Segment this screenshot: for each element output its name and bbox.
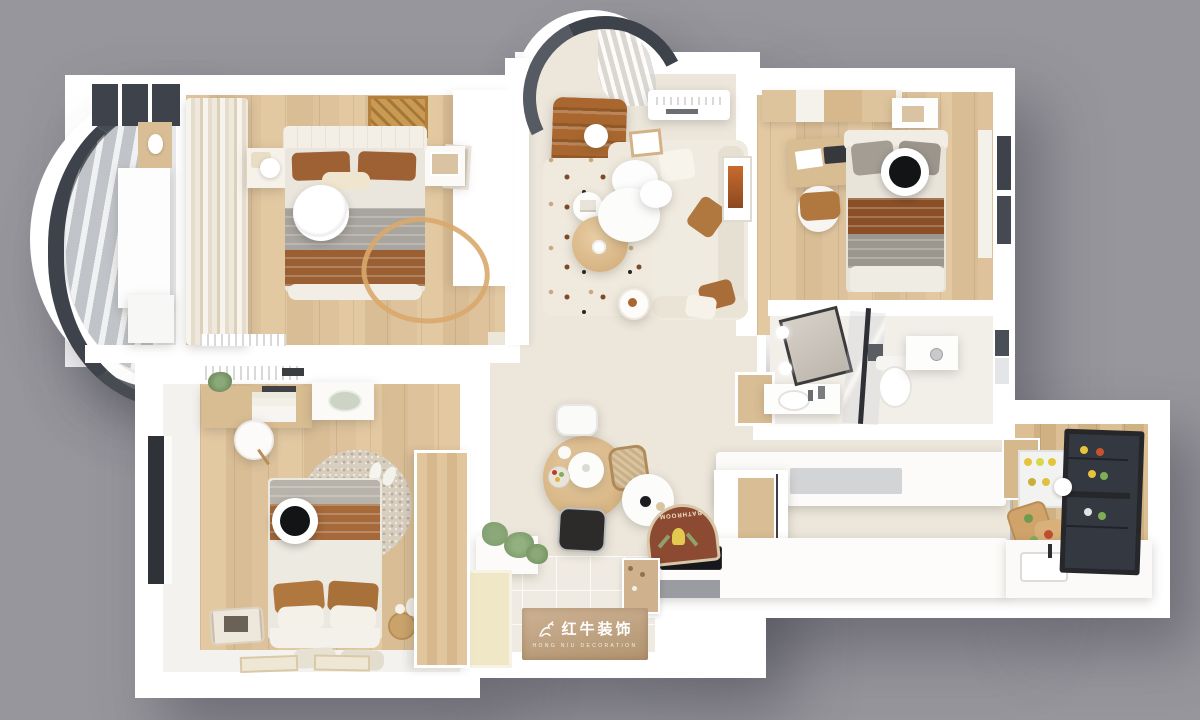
wall-bedroom2-right [993,68,1015,312]
bedroom3-mat-1 [240,655,299,673]
living-ottoman-center [628,298,637,307]
bedroom3-duvet-white [270,540,380,584]
wall-bathroom-bottom [753,424,1015,440]
fridge-food-4 [1100,472,1108,480]
living-ac-label [666,109,698,114]
living-pillow-white [658,148,696,182]
floorplan-render: BATHROOM 红牛装饰 HONG NIU DECORATION [0,0,1200,720]
plate-dot-3 [555,477,560,482]
kitchen-counter-front-gray [656,580,720,598]
balcony-master-sill [176,95,186,345]
bedroom2-desk-paper [795,148,823,169]
fridge-food-6 [1098,512,1106,520]
master-curtains [186,98,248,345]
bedroom2-window-2 [997,196,1011,244]
bedroom3-desk-books [252,392,296,422]
plate-dot-2 [559,472,564,477]
fridge-food-1 [1080,446,1088,454]
living-wall-art-canvas [728,166,743,208]
fruit-dot-2 [1036,458,1044,466]
living-pillow-white-2 [685,294,718,320]
dining-teapot-spout [558,446,571,459]
living-side-table-book [580,200,596,212]
bedroom3-wardrobe [414,450,470,668]
bedroom3-ac-slot [282,368,304,376]
living-floor-frame [629,128,664,157]
living-coffee-plate [592,240,606,254]
wall-bedroom2-top [753,68,1015,92]
living-armchair-side-table [584,124,608,148]
bedroom2-tray-deco [900,104,926,124]
fridge-food-3 [1088,470,1096,478]
bedroom2-bed-foot [850,266,944,292]
entry-logo-mat: 红牛装饰 HONG NIU DECORATION [522,608,648,660]
living-ac-grille [656,97,722,105]
bedroom3-window [148,436,164,584]
bedroom2-ceiling-lamp-black [889,156,921,188]
bedroom2-blanket-brown [848,198,944,236]
bedroom3-suitcase-label [224,616,248,632]
balcony-top-mullion [118,84,122,126]
master-ac-vent [200,334,286,346]
living-ac-unit [648,90,730,120]
bath-mat-tulip [672,528,685,545]
bull-logo-icon [536,620,556,640]
living-pendant-cloud-3 [640,180,672,208]
bathroom-bulb-1 [776,326,789,339]
bedroom2-window [997,136,1011,190]
fruit-dot-1 [1024,458,1032,466]
logo-english-text: HONG NIU DECORATION [533,643,638,649]
fruit-dot-3 [1048,458,1056,466]
bedroom3-mat-2 [314,655,370,672]
fruit-dot-5 [1042,478,1050,486]
bedroom3-chair [234,420,274,460]
kitchen-counter-inset [790,468,902,494]
veg-dot-2 [1044,530,1053,539]
wall-bedroom3-top [135,358,480,384]
balcony-top-mullion-2 [148,84,152,126]
bedroom3-candle [395,604,405,614]
bath-mat-text: BATHROOM [658,509,701,519]
wall-bedroom3-bottom [135,672,480,698]
dining-chair-south-black [557,507,607,553]
wall-kitchen-bottom [640,596,1170,618]
balcony-vase [148,134,163,154]
fruit-dot-4 [1028,478,1036,486]
master-nightstand-right-deco [430,152,460,176]
bedroom2-wardrobe [762,90,902,122]
master-ceiling-lamp [293,185,349,241]
bathroom-window-dark [995,330,1009,356]
plate-dot-1 [552,470,557,475]
fridge-handle-knob [1054,478,1072,496]
shelf-peg-3 [632,586,637,591]
hall-plant-3 [526,544,548,564]
veg-dot-1 [1024,514,1033,523]
bedroom3-sideboard-tray [328,390,362,412]
bathroom-sink [778,390,810,411]
balcony-cabinet [118,168,170,308]
bathroom-faucet [808,390,813,401]
bedroom2-chair-seat [799,191,841,222]
bathroom-shower-head [930,348,943,361]
bathroom-window-light [995,358,1009,384]
bedroom3-desk-notebook [262,386,296,392]
wall-wing-top [1000,400,1170,424]
shelf-peg-1 [628,566,633,571]
fridge-food-2 [1096,448,1104,456]
bedroom3-window-sill [164,436,172,584]
kitchen-faucet [1048,544,1052,558]
fridge-food-5 [1084,508,1092,516]
bedroom2-curtain-sliver [978,130,992,258]
balcony-bench [128,295,174,343]
shelf-peg-2 [640,572,645,577]
balcony-top-glazing [92,84,180,126]
bedroom2-blanket-gray [848,234,944,268]
bedroom3-ceiling-lamp-black [280,506,310,536]
pendant-dot-black [640,496,651,507]
master-table-lamp [260,158,280,178]
bathroom-soap-bottle [818,386,825,399]
dining-teapot-lid [582,464,590,472]
bathroom-toilet [878,366,912,408]
bedroom3-headboard [270,628,380,648]
bathroom-bulb-2 [779,362,792,375]
dining-chair-north [556,404,598,436]
bedroom3-bedside-lamp [388,612,416,640]
logo-chinese-text: 红牛装饰 [561,622,633,637]
